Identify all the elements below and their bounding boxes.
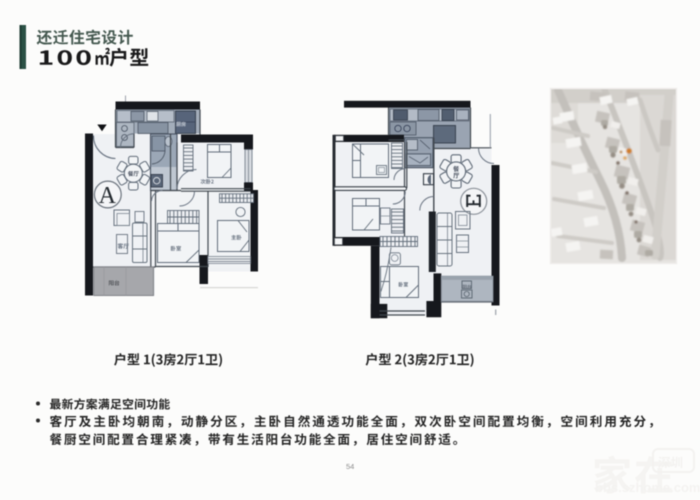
svg-text:A: A: [99, 183, 117, 209]
svg-text:54: 54: [346, 462, 354, 471]
svg-text:bbs.szhome.com: bbs.szhome.com: [595, 480, 700, 495]
